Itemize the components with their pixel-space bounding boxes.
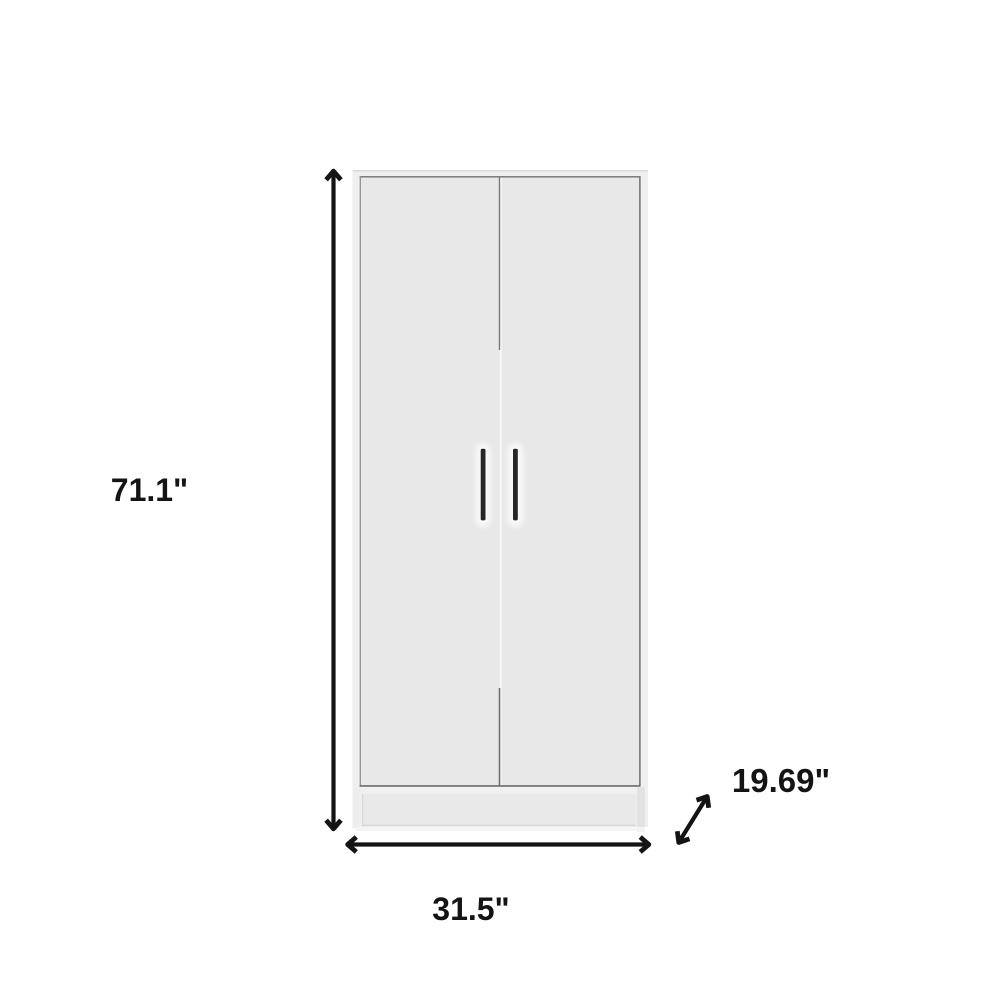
svg-text:71.1": 71.1" — [111, 472, 188, 508]
svg-text:19.69": 19.69" — [732, 762, 830, 799]
svg-text:31.5": 31.5" — [432, 891, 509, 927]
